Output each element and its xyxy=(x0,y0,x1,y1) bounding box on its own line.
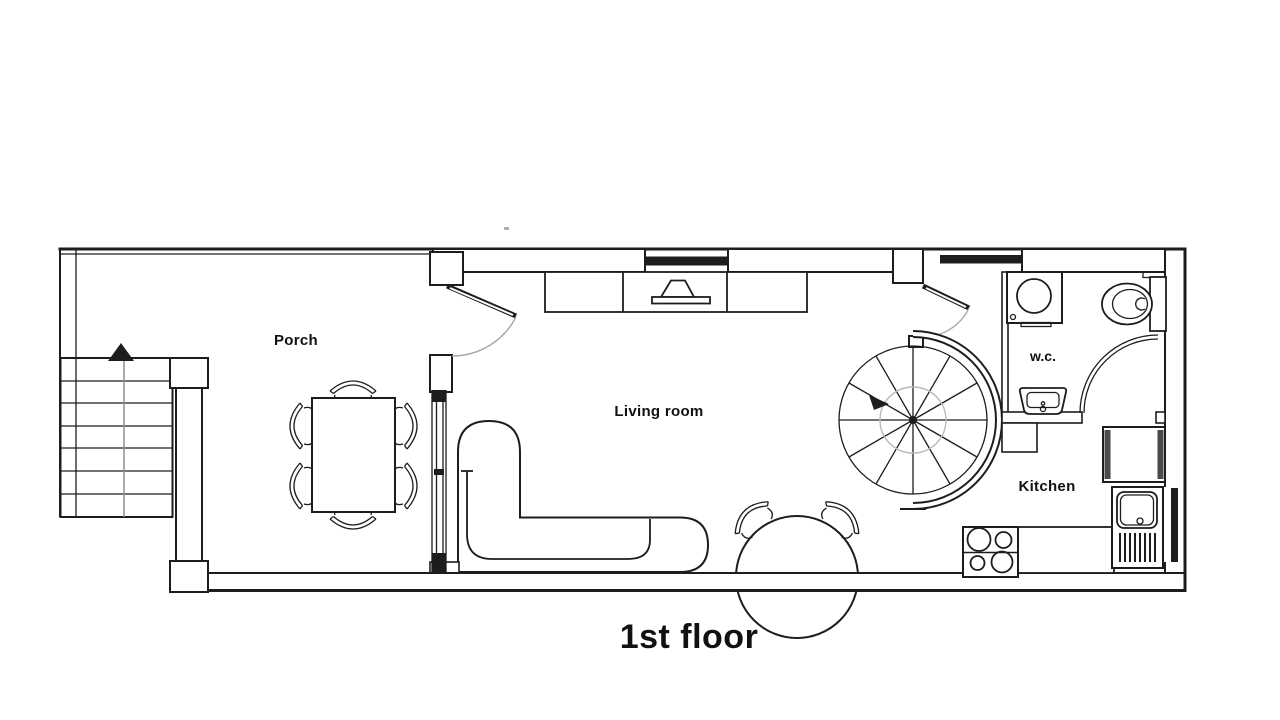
bottom-wall xyxy=(202,573,1185,591)
porch-wall xyxy=(170,358,208,592)
dining-set xyxy=(290,381,417,529)
toilet xyxy=(1102,277,1166,331)
right-wall-window xyxy=(1171,488,1178,562)
hall-door-stub xyxy=(893,249,923,283)
living-door xyxy=(447,286,516,356)
artifact-dot xyxy=(504,227,509,230)
floor-plan-drawing xyxy=(0,0,1280,720)
fridge xyxy=(1103,427,1165,482)
porch-left-rail xyxy=(60,249,76,517)
porch-pillar-bottom xyxy=(170,561,208,592)
stairs-up-arrow xyxy=(108,343,134,361)
dining-chair xyxy=(393,463,418,509)
right-wall xyxy=(1165,248,1185,593)
tv-stand xyxy=(652,297,710,304)
page-title: 1st floor xyxy=(539,618,839,657)
living-room-label: Living room xyxy=(589,403,729,420)
kitchen-counter xyxy=(1018,527,1114,573)
dining-chair xyxy=(290,463,315,509)
dining-table xyxy=(312,398,395,512)
entry-stairs xyxy=(61,343,173,517)
dining-chair xyxy=(290,403,315,449)
stove xyxy=(963,527,1018,577)
washing-machine xyxy=(1007,272,1062,327)
kitchen-duct xyxy=(1002,423,1037,452)
partition-window xyxy=(432,390,446,573)
kitchen-sink xyxy=(1112,487,1163,568)
wc-bottom-wall-stub xyxy=(1156,412,1165,423)
spiral-staircase xyxy=(839,334,999,509)
top-window-1 xyxy=(645,257,728,266)
living-door-stub xyxy=(430,252,463,285)
wc-sink xyxy=(1020,388,1066,414)
floor-plan: Porch Living room w.c. Kitchen 1st floor xyxy=(0,0,1280,720)
porch-pillar-top xyxy=(170,358,208,388)
dining-chair xyxy=(393,403,418,449)
spiral-direction-arrow xyxy=(869,395,889,410)
sofa xyxy=(430,421,708,573)
porch-label: Porch xyxy=(246,332,346,349)
kitchen-label: Kitchen xyxy=(987,478,1107,495)
tv-cabinet xyxy=(545,272,807,312)
wc-door-swing xyxy=(1080,335,1158,413)
top-window-2 xyxy=(940,255,1022,264)
wc-label: w.c. xyxy=(1003,348,1083,364)
